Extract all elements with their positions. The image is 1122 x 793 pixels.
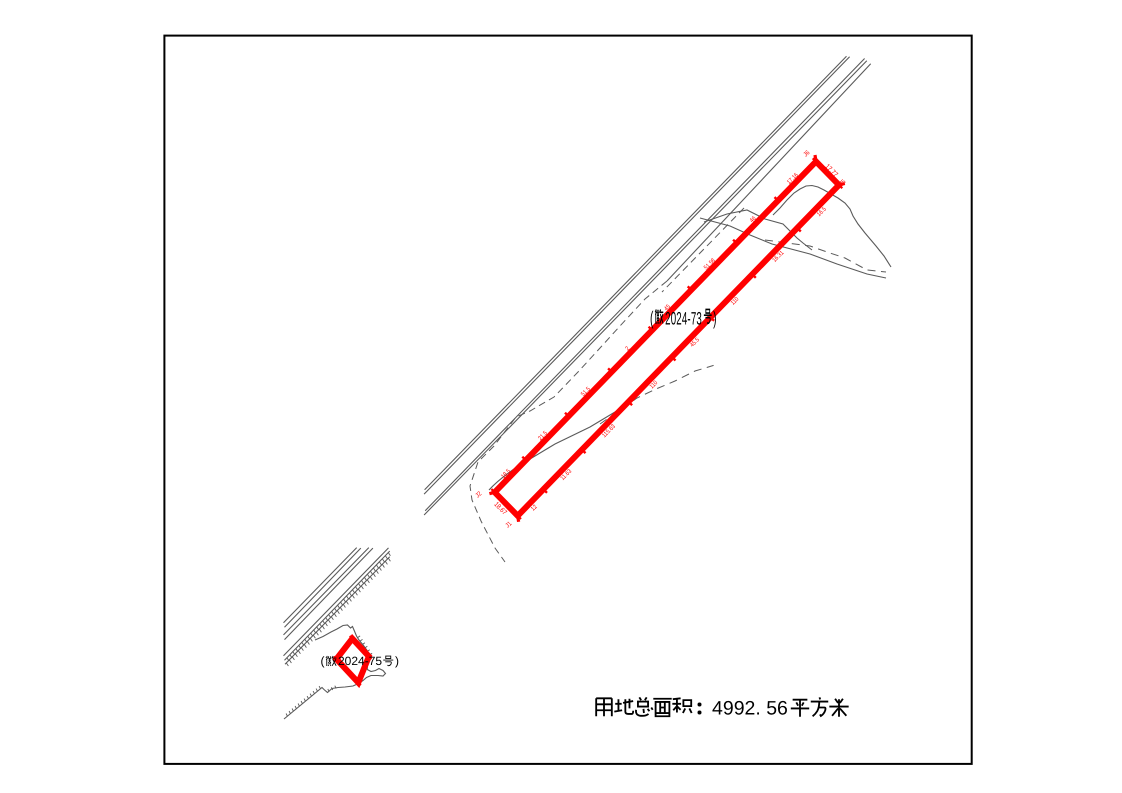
svg-text:(: (	[650, 309, 654, 330]
svg-text:2024-75: 2024-75	[338, 654, 382, 668]
svg-text:(: (	[321, 654, 325, 668]
svg-text:2024-73: 2024-73	[665, 309, 702, 329]
svg-text:): )	[713, 309, 716, 330]
svg-text:4992. 56: 4992. 56	[712, 698, 788, 720]
svg-text:): )	[395, 654, 399, 668]
